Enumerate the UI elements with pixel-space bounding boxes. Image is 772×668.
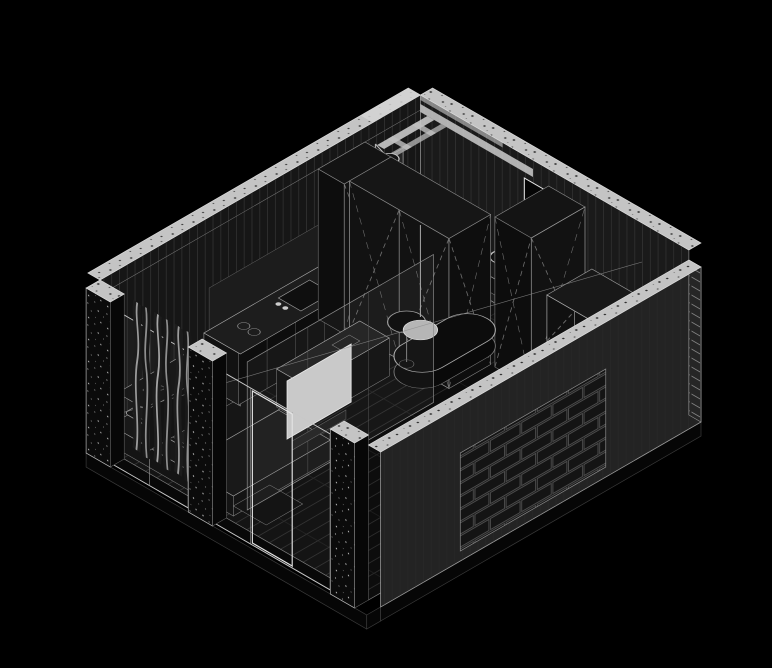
axonometric-apartment-drawing	[0, 0, 772, 668]
pier-side-face	[355, 435, 369, 608]
concrete-pier	[188, 347, 212, 526]
pier-side-face	[110, 294, 124, 467]
concrete-pier	[330, 429, 354, 608]
pier-side-face	[213, 353, 227, 526]
front-wall-end-cut	[689, 260, 701, 422]
concrete-pier	[86, 288, 110, 467]
